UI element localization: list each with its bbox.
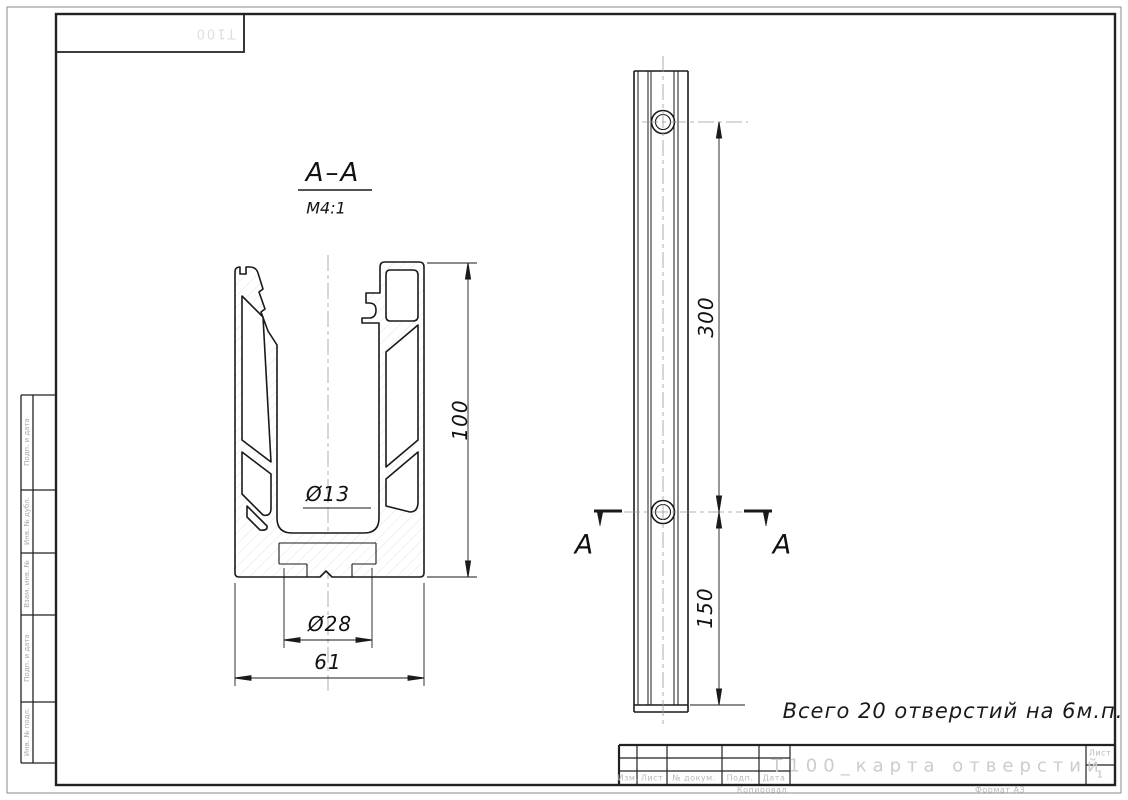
footer-kopiroval: Копировал [737, 786, 787, 795]
margin-label-inv-podl: Инв. № подл. [23, 708, 31, 756]
margin-label-podp-i-data-2: Подп. и дата [23, 634, 31, 682]
section-letter-left: А [575, 530, 593, 561]
title-block-sheet-number: 1 [1097, 770, 1104, 781]
title-block-label-podp: Подп. [727, 774, 754, 783]
drawing-linework [0, 0, 1128, 800]
section-cut-marks [594, 511, 772, 526]
dim-width-61: 61 [314, 650, 341, 674]
footer-format: Формат А3 [975, 786, 1025, 795]
section-letter-right: А [773, 530, 791, 561]
drawing-note: Всего 20 отверстий на 6м.п. [783, 699, 1124, 723]
title-block-doc-title: Т100_карта отверстий [771, 756, 1104, 777]
title-block-sheet-label: Лист [1089, 749, 1111, 758]
section-title: А–А [306, 158, 361, 188]
side-view-strip [624, 56, 748, 726]
dim-seat-dia-28: Ø28 [308, 612, 352, 636]
title-block-label-doc: № докум. [672, 774, 715, 783]
title-block-label-izm: Изм. [618, 774, 639, 783]
dim-height-100: 100 [448, 399, 472, 440]
margin-label-podp-i-data-1: Подп. и дата [23, 418, 31, 466]
margin-label-vzam-inv: Взам. инв. № [23, 560, 31, 608]
section-scale: М4:1 [306, 199, 346, 218]
dim-end-offset-150: 150 [693, 587, 717, 628]
dim-hole-dia-13: Ø13 [306, 482, 350, 506]
dim-hole-spacing-300: 300 [694, 296, 718, 337]
margin-label-inv-dubl: Инв. № дубл. [23, 497, 31, 545]
title-block-label-data: Дата [763, 774, 786, 783]
sheet-frame [7, 7, 1121, 793]
drawing-sheet: А–А М4:1 100 Ø13 Ø28 61 300 150 А А Всег… [0, 0, 1128, 800]
title-block-label-list: Лист [641, 774, 663, 783]
designation-stamp: Т100 [195, 26, 236, 41]
